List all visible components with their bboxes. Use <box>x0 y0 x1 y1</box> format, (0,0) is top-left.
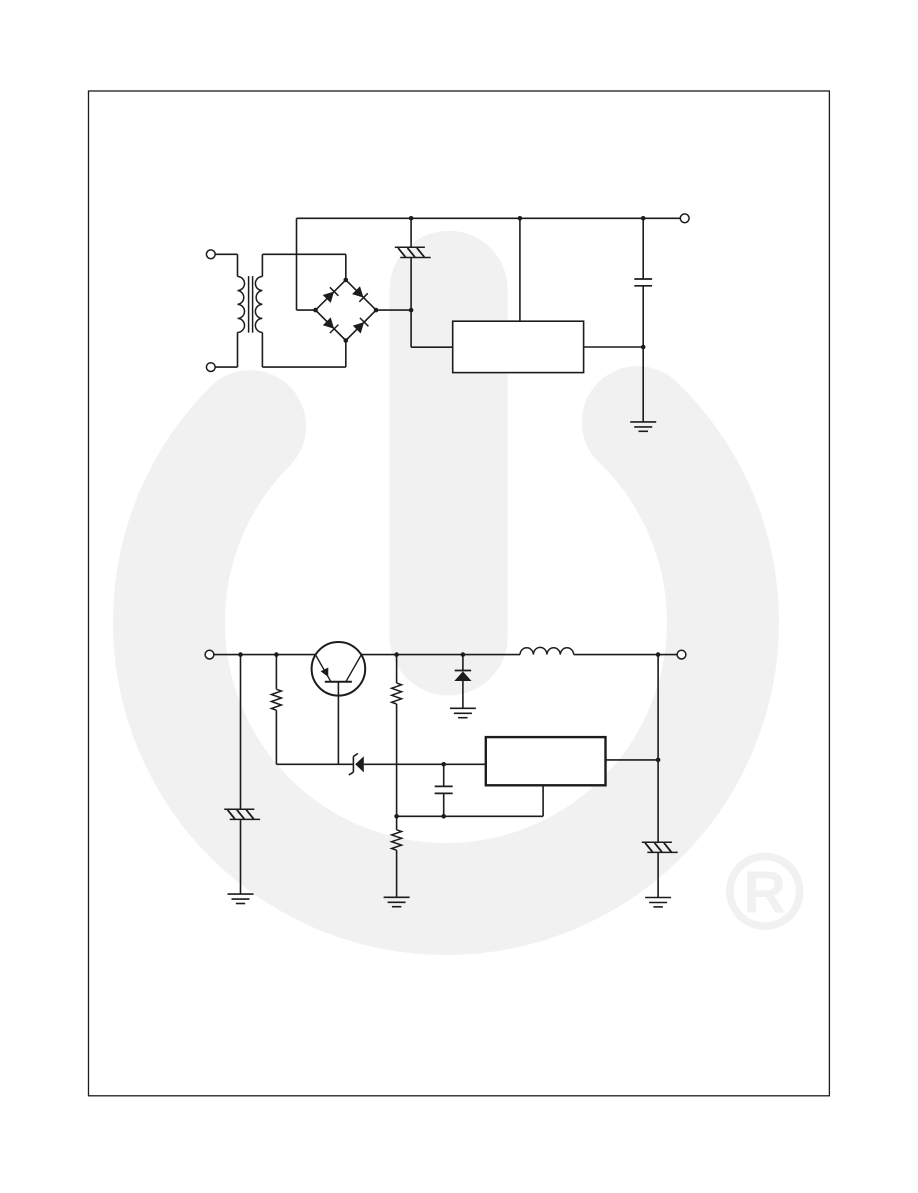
svg-text:R: R <box>743 860 786 926</box>
